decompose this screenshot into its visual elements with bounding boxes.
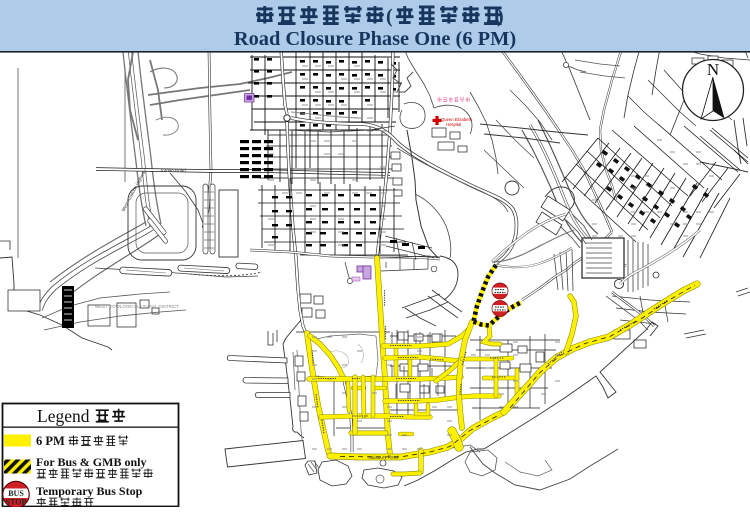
svg-text:Legend: Legend bbox=[37, 406, 90, 426]
svg-text:STOP: STOP bbox=[6, 498, 27, 507]
svg-text:Salisbury Road: Salisbury Road bbox=[368, 454, 399, 460]
svg-text:Road Closure Phase One (6 PM): Road Closure Phase One (6 PM) bbox=[234, 28, 516, 50]
svg-text:Jordan Road: Jordan Road bbox=[160, 168, 186, 173]
svg-text:WEST KOWLOON CULTURAL DISTRICT: WEST KOWLOON CULTURAL DISTRICT bbox=[95, 304, 179, 309]
svg-text:): ) bbox=[497, 6, 504, 28]
svg-text:Temporary Bus Stop: Temporary Bus Stop bbox=[36, 484, 143, 498]
svg-text:Hospital: Hospital bbox=[446, 122, 461, 127]
svg-text:6 PM: 6 PM bbox=[36, 434, 65, 448]
svg-text:(: ( bbox=[386, 6, 393, 28]
svg-text:For Bus & GMB only: For Bus & GMB only bbox=[36, 455, 146, 469]
svg-text:N: N bbox=[707, 60, 719, 79]
